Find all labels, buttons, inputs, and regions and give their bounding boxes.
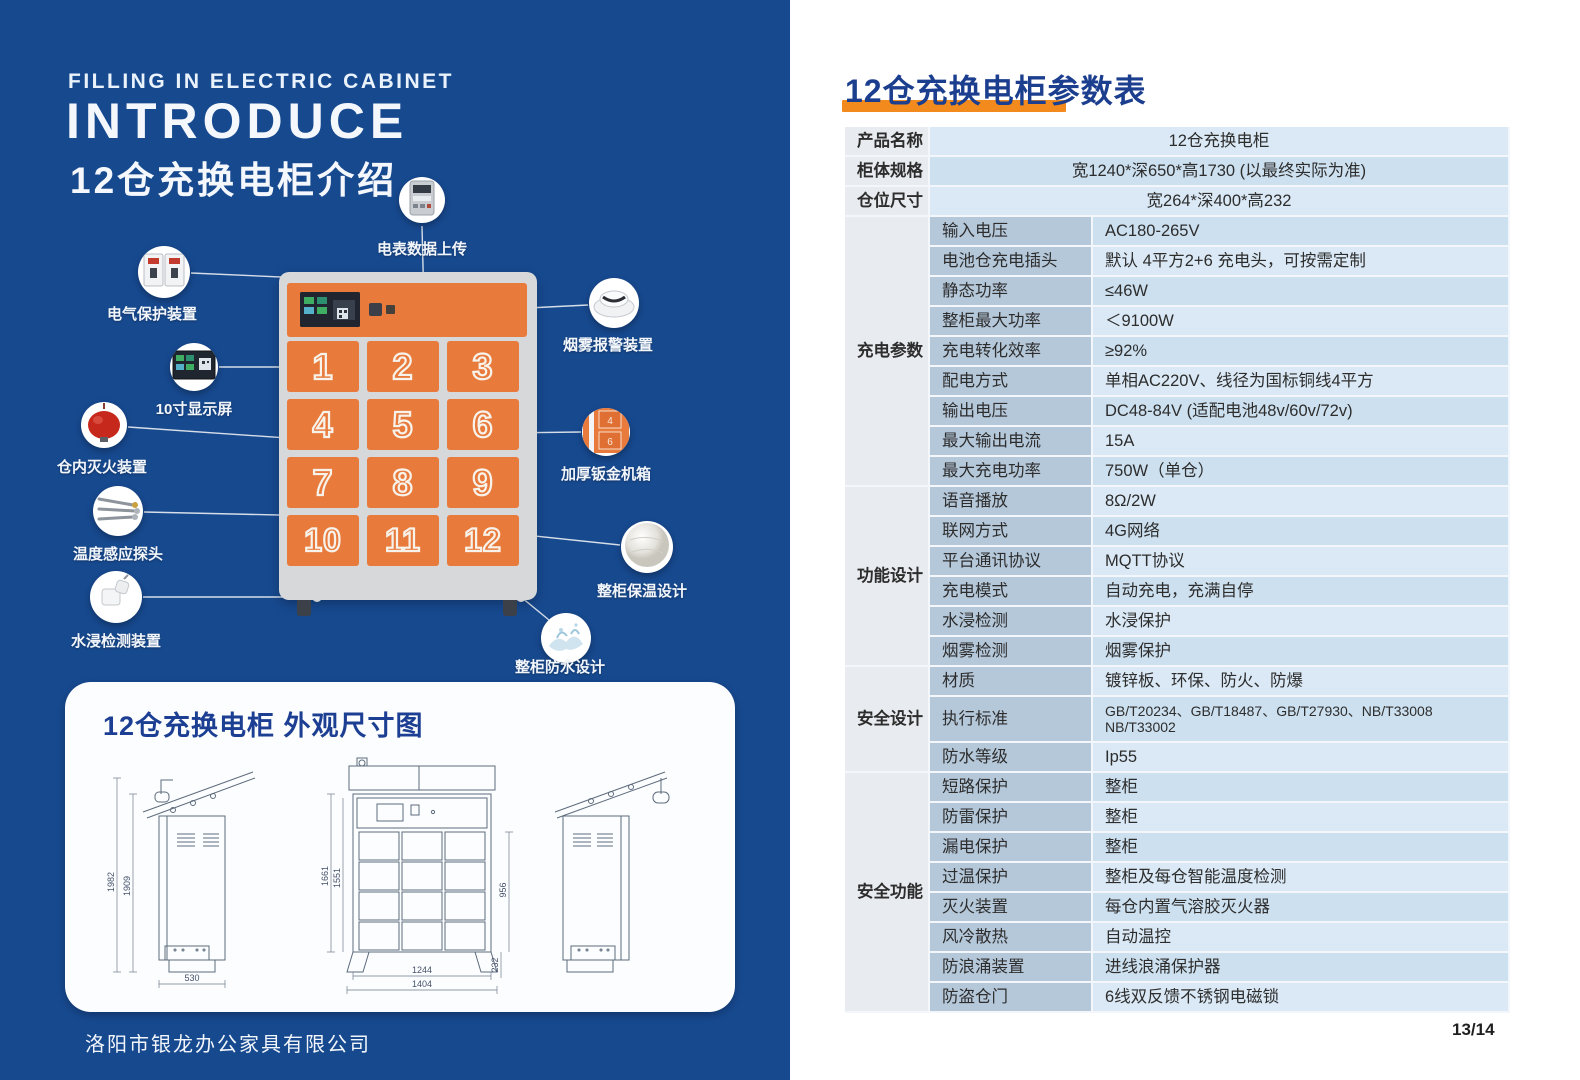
cabinet-foot-right — [503, 600, 517, 616]
table-row: 联网方式4G网络 — [845, 517, 1510, 547]
group-label: 安全功能 — [845, 773, 930, 1013]
callout-meter — [399, 177, 445, 223]
door-number: 5 — [392, 404, 413, 446]
row-value: 宽1240*深650*高1730 (以最终实际为准) — [930, 157, 1510, 187]
param-label: 过温保护 — [930, 863, 1093, 893]
door-number: 7 — [312, 462, 333, 504]
dimension-panel: 12仓充换电柜 外观尺寸图 1982 1909 — [65, 682, 735, 1012]
param-label: 烟雾检测 — [930, 637, 1093, 667]
front-view-svg: 1661 1551 956 232 1244 1404 — [313, 750, 523, 1000]
param-label: 充电模式 — [930, 577, 1093, 607]
table-row: 烟雾检测烟雾保护 — [845, 637, 1510, 667]
door-number: 2 — [392, 346, 413, 388]
callout-probe — [93, 486, 143, 536]
callout-label-sheetmetal: 加厚钣金机箱 — [561, 463, 651, 484]
table-row: 安全设计材质镀锌板、环保、防火、防爆 — [845, 667, 1510, 697]
param-value: ≤46W — [1093, 277, 1510, 307]
callout-smoke — [589, 278, 639, 328]
dim-side-inner: 1909 — [122, 876, 132, 896]
cabinet-door-6: 6 — [447, 399, 519, 450]
callout-label-waterproof: 整柜防水设计 — [515, 656, 605, 677]
row-label: 仓位尺寸 — [845, 187, 930, 217]
param-label: 风冷散热 — [930, 923, 1093, 953]
callout-label-breaker: 电气保护装置 — [107, 303, 197, 324]
table-row: 风冷散热自动温控 — [845, 923, 1510, 953]
dim-front-right: 956 — [498, 882, 508, 897]
side-view-left-drawing: 1982 1909 — [103, 750, 303, 1000]
svg-text:6: 6 — [607, 437, 613, 448]
door-number: 10 — [304, 522, 342, 559]
front-view-drawing: 1661 1551 956 232 1244 1404 — [313, 750, 523, 1000]
dim-front-w-outer: 1404 — [412, 979, 432, 989]
param-label: 配电方式 — [930, 367, 1093, 397]
page-number: 13/14 — [1452, 1020, 1495, 1040]
side-view-left-svg: 1982 1909 — [103, 750, 303, 1000]
param-label: 水浸检测 — [930, 607, 1093, 637]
param-label: 防浪涌装置 — [930, 953, 1093, 983]
table-row: 漏电保护整柜 — [845, 833, 1510, 863]
param-value: GB/T20234、GB/T18487、GB/T27930、NB/T33008 … — [1093, 697, 1510, 743]
sheet-metal-icon: 46 — [583, 408, 629, 456]
param-value: 15A — [1093, 427, 1510, 457]
param-label: 漏电保护 — [930, 833, 1093, 863]
door-number: 1 — [312, 346, 333, 388]
cabinet-door-8: 8 — [367, 457, 439, 508]
electric-meter-icon — [405, 179, 439, 222]
param-value: 整柜 — [1093, 803, 1510, 833]
side-view-right-drawing — [535, 750, 725, 1000]
waterproof-icon — [543, 616, 589, 661]
param-value: AC180-265V — [1093, 217, 1510, 247]
row-label: 产品名称 — [845, 127, 930, 157]
param-value: 自动温控 — [1093, 923, 1510, 953]
group-label: 安全设计 — [845, 667, 930, 773]
screen-content — [300, 292, 360, 327]
cabinet-door-5: 5 — [367, 399, 439, 450]
param-label: 输入电压 — [930, 217, 1093, 247]
battery-cabinet-illustration: 123456789101112 — [279, 272, 537, 600]
table-row: 最大充电功率750W（单仓） — [845, 457, 1510, 487]
param-value: 默认 4平方2+6 充电头，可按需定制 — [1093, 247, 1510, 277]
dim-side-width: 530 — [184, 973, 199, 983]
dimension-panel-title: 12仓充换电柜 外观尺寸图 — [103, 704, 424, 743]
company-name: 洛阳市银龙办公家具有限公司 — [85, 1028, 371, 1057]
eyebrow-text: FILLING IN ELECTRIC CABINET — [68, 70, 454, 94]
door-number: 9 — [472, 462, 493, 504]
door-number: 12 — [464, 522, 502, 559]
param-value: Ip55 — [1093, 743, 1510, 773]
insulation-icon — [622, 521, 672, 573]
table-row: 过温保护整柜及每仓智能温度检测 — [845, 863, 1510, 893]
door-number: 11 — [385, 522, 421, 559]
cabinet-door-12: 12 — [447, 515, 519, 566]
callout-sheetmetal: 46 — [582, 408, 630, 456]
param-label: 最大输出电流 — [930, 427, 1093, 457]
param-value: 8Ω/2W — [1093, 487, 1510, 517]
brand-mark — [386, 305, 395, 314]
table-row: 执行标准GB/T20234、GB/T18487、GB/T27930、NB/T33… — [845, 697, 1510, 743]
param-value: ≥92% — [1093, 337, 1510, 367]
param-value: 镀锌板、环保、防火、防爆 — [1093, 667, 1510, 697]
parameter-table: 产品名称12仓充换电柜柜体规格宽1240*深650*高1730 (以最终实际为准… — [845, 127, 1510, 1013]
table-row: 灭火装置每仓内置气溶胶灭火器 — [845, 893, 1510, 923]
param-label: 材质 — [930, 667, 1093, 697]
param-label: 灭火装置 — [930, 893, 1093, 923]
param-label: 语音播放 — [930, 487, 1093, 517]
callout-display — [170, 343, 218, 391]
table-row: 最大输出电流15A — [845, 427, 1510, 457]
table-row: 充电参数输入电压AC180-265V — [845, 217, 1510, 247]
param-value: 自动充电，充满自停 — [1093, 577, 1510, 607]
table-row: 充电模式自动充电，充满自停 — [845, 577, 1510, 607]
param-value: 6线双反馈不锈钢电磁锁 — [1093, 983, 1510, 1013]
callout-label-watersensor: 水浸检测装置 — [71, 630, 161, 651]
param-value: DC48-84V (适配电池48v/60v/72v) — [1093, 397, 1510, 427]
param-value: 4G网络 — [1093, 517, 1510, 547]
door-number: 6 — [472, 404, 493, 446]
table-row: 配电方式单相AC220V、线径为国标铜线4平方 — [845, 367, 1510, 397]
page-title: INTRODUCE — [66, 92, 408, 150]
callout-label-smoke: 烟雾报警装置 — [563, 334, 653, 355]
param-label: 充电转化效率 — [930, 337, 1093, 367]
brochure-page: { "colors":{ "panel_blue":"#17498f","doo… — [0, 0, 1580, 1080]
param-label: 电池仓充电插头 — [930, 247, 1093, 277]
table-row: 安全功能短路保护整柜 — [845, 773, 1510, 803]
water-sensor-icon — [94, 573, 138, 622]
svg-text:4: 4 — [607, 416, 613, 427]
callout-extinguisher — [81, 402, 127, 448]
param-label: 输出电压 — [930, 397, 1093, 427]
table-row: 整柜最大功率＜9100W — [845, 307, 1510, 337]
callout-label-extinguisher: 仓内灭火装置 — [57, 456, 147, 477]
callout-watersensor — [90, 571, 142, 623]
table-row: 电池仓充电插头默认 4平方2+6 充电头，可按需定制 — [845, 247, 1510, 277]
param-value: 750W（单仓） — [1093, 457, 1510, 487]
param-value: 进线浪涌保护器 — [1093, 953, 1510, 983]
side-view-right-svg — [535, 750, 725, 1000]
param-value: 水浸保护 — [1093, 607, 1510, 637]
table-row: 静态功率≤46W — [845, 277, 1510, 307]
param-value: 整柜 — [1093, 773, 1510, 803]
callout-label-insulation: 整柜保温设计 — [597, 580, 687, 601]
param-value: MQTT协议 — [1093, 547, 1510, 577]
table-row: 产品名称12仓充换电柜 — [845, 127, 1510, 157]
table-row: 水浸检测水浸保护 — [845, 607, 1510, 637]
table-row: 柜体规格宽1240*深650*高1730 (以最终实际为准) — [845, 157, 1510, 187]
cabinet-door-4: 4 — [287, 399, 359, 450]
table-row: 防盗仓门6线双反馈不锈钢电磁锁 — [845, 983, 1510, 1013]
group-label: 充电参数 — [845, 217, 930, 487]
dim-front-base: 232 — [490, 957, 500, 972]
param-label: 平台通讯协议 — [930, 547, 1093, 577]
callout-breaker — [138, 246, 190, 298]
cabinet-door-2: 2 — [367, 341, 439, 392]
param-label: 防盗仓门 — [930, 983, 1093, 1013]
param-title-block: 12仓充换电柜参数表 — [845, 66, 1147, 112]
dim-front-w-inner: 1244 — [412, 965, 432, 975]
cabinet-doors: 123456789101112 — [287, 341, 529, 635]
smoke-alarm-icon — [591, 283, 637, 324]
dim-side-outer: 1982 — [106, 872, 116, 892]
fire-extinguisher-icon — [84, 402, 124, 448]
dim-front-inner: 1551 — [332, 868, 342, 888]
param-value: 烟雾保护 — [1093, 637, 1510, 667]
table-row: 防水等级Ip55 — [845, 743, 1510, 773]
callout-label-probe: 温度感应探头 — [73, 543, 163, 564]
param-label: 执行标准 — [930, 697, 1093, 743]
param-label: 防水等级 — [930, 743, 1093, 773]
param-label: 短路保护 — [930, 773, 1093, 803]
group-label: 功能设计 — [845, 487, 930, 667]
callout-label-meter: 电表数据上传 — [377, 238, 467, 259]
cabinet-door-3: 3 — [447, 341, 519, 392]
cabinet-door-9: 9 — [447, 457, 519, 508]
callout-label-display: 10寸显示屏 — [156, 398, 233, 419]
row-value: 宽264*深400*高232 — [930, 187, 1510, 217]
param-table-title: 12仓充换电柜参数表 — [845, 66, 1147, 112]
temperature-probe-icon — [95, 489, 141, 534]
door-number: 4 — [312, 404, 333, 446]
param-value: 每仓内置气溶胶灭火器 — [1093, 893, 1510, 923]
table-row: 防浪涌装置进线浪涌保护器 — [845, 953, 1510, 983]
table-row: 功能设计语音播放8Ω/2W — [845, 487, 1510, 517]
table-row: 仓位尺寸宽264*深400*高232 — [845, 187, 1510, 217]
cabinet-door-10: 10 — [287, 515, 359, 566]
left-intro-panel: FILLING IN ELECTRIC CABINET INTRODUCE 12… — [0, 0, 790, 1080]
param-label: 整柜最大功率 — [930, 307, 1093, 337]
param-label: 最大充电功率 — [930, 457, 1093, 487]
param-label: 联网方式 — [930, 517, 1093, 547]
param-value: ＜9100W — [1093, 307, 1510, 337]
qr-logo — [369, 303, 382, 316]
cabinet-screen — [300, 292, 360, 327]
param-label: 静态功率 — [930, 277, 1093, 307]
param-value: 整柜及每仓智能温度检测 — [1093, 863, 1510, 893]
table-row: 平台通讯协议MQTT协议 — [845, 547, 1510, 577]
circuit-breaker-icon — [142, 250, 186, 295]
cabinet-door-11: 11 — [367, 515, 439, 566]
cabinet-door-1: 1 — [287, 341, 359, 392]
callout-insulation — [621, 521, 673, 573]
dim-front-outer: 1661 — [320, 866, 330, 886]
cabinet-top-panel — [287, 283, 527, 337]
cabinet-foot-left — [297, 600, 311, 616]
param-value: 整柜 — [1093, 833, 1510, 863]
page-subtitle: 12仓充换电柜介绍 — [70, 150, 397, 204]
param-label: 防雷保护 — [930, 803, 1093, 833]
table-row: 防雷保护整柜 — [845, 803, 1510, 833]
row-label: 柜体规格 — [845, 157, 930, 187]
door-number: 3 — [472, 346, 493, 388]
door-number: 8 — [392, 462, 413, 504]
table-row: 充电转化效率≥92% — [845, 337, 1510, 367]
display-screen-icon — [172, 350, 216, 385]
table-row: 输出电压DC48-84V (适配电池48v/60v/72v) — [845, 397, 1510, 427]
param-value: 单相AC220V、线径为国标铜线4平方 — [1093, 367, 1510, 397]
cabinet-door-7: 7 — [287, 457, 359, 508]
row-value: 12仓充换电柜 — [930, 127, 1510, 157]
